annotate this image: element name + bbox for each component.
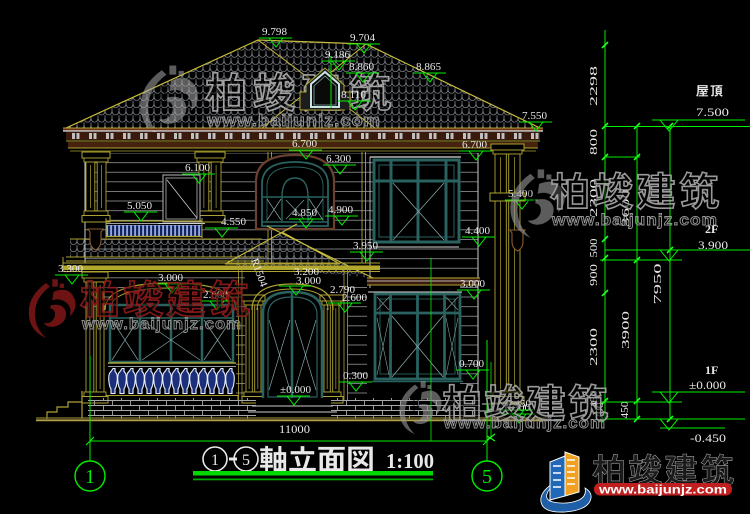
svg-text:8.860: 8.860 (349, 61, 375, 73)
svg-text:8.865: 8.865 (416, 61, 442, 73)
svg-text:4.850: 4.850 (292, 207, 318, 219)
svg-text:1: 1 (211, 452, 219, 469)
svg-text:1F: 1F (705, 363, 718, 377)
svg-text:3900: 3900 (620, 310, 632, 349)
svg-text:8.110: 8.110 (341, 89, 367, 101)
svg-text:7.500: 7.500 (696, 105, 729, 119)
svg-text:9.798: 9.798 (262, 26, 288, 38)
svg-text:0.700: 0.700 (459, 358, 485, 370)
svg-text:-0.450: -0.450 (690, 431, 726, 445)
svg-text:www.baijunjz.com: www.baijunjz.com (81, 316, 242, 333)
svg-text:7950: 7950 (652, 263, 664, 305)
svg-text:5.050: 5.050 (127, 200, 153, 212)
svg-text:800: 800 (588, 128, 600, 155)
svg-text:0.300: 0.300 (343, 370, 369, 382)
svg-text:5: 5 (482, 466, 492, 488)
svg-text:4.550: 4.550 (221, 216, 247, 228)
svg-text:6.100: 6.100 (185, 162, 211, 174)
svg-text:2300: 2300 (588, 327, 600, 366)
svg-text:±0.000: ±0.000 (689, 378, 726, 392)
svg-text:3.900: 3.900 (698, 238, 728, 252)
svg-text:6.300: 6.300 (326, 153, 352, 165)
svg-text:5: 5 (242, 452, 250, 469)
svg-text:www.baijunjz.com: www.baijunjz.com (206, 111, 381, 130)
svg-text:www.baijunjz.com: www.baijunjz.com (443, 415, 606, 432)
svg-text:3.300: 3.300 (58, 263, 84, 275)
svg-text:450: 450 (620, 402, 631, 419)
svg-text:3.000: 3.000 (296, 275, 322, 287)
svg-text:1: 1 (85, 466, 95, 488)
svg-text:6.700: 6.700 (292, 138, 318, 150)
svg-text:7.550: 7.550 (522, 110, 548, 122)
svg-text:2298: 2298 (588, 65, 600, 106)
svg-text:9.186: 9.186 (325, 49, 351, 61)
svg-text:9.704: 9.704 (350, 32, 376, 44)
svg-text:1:100: 1:100 (386, 449, 434, 473)
svg-text:2.600: 2.600 (342, 292, 368, 304)
svg-text:3.950: 3.950 (353, 240, 379, 252)
svg-text:www.baijunjz.com: www.baijunjz.com (551, 212, 718, 229)
svg-text:11000: 11000 (279, 422, 310, 436)
svg-text:4.400: 4.400 (465, 225, 491, 237)
svg-text:900: 900 (589, 264, 600, 286)
svg-text:4.900: 4.900 (328, 204, 354, 216)
svg-text:3.000: 3.000 (460, 278, 486, 290)
svg-text:±0.000: ±0.000 (280, 384, 311, 396)
svg-text:500: 500 (589, 239, 600, 258)
svg-text:www.baijunjz.com: www.baijunjz.com (598, 483, 727, 497)
svg-text:6.700: 6.700 (462, 139, 488, 151)
